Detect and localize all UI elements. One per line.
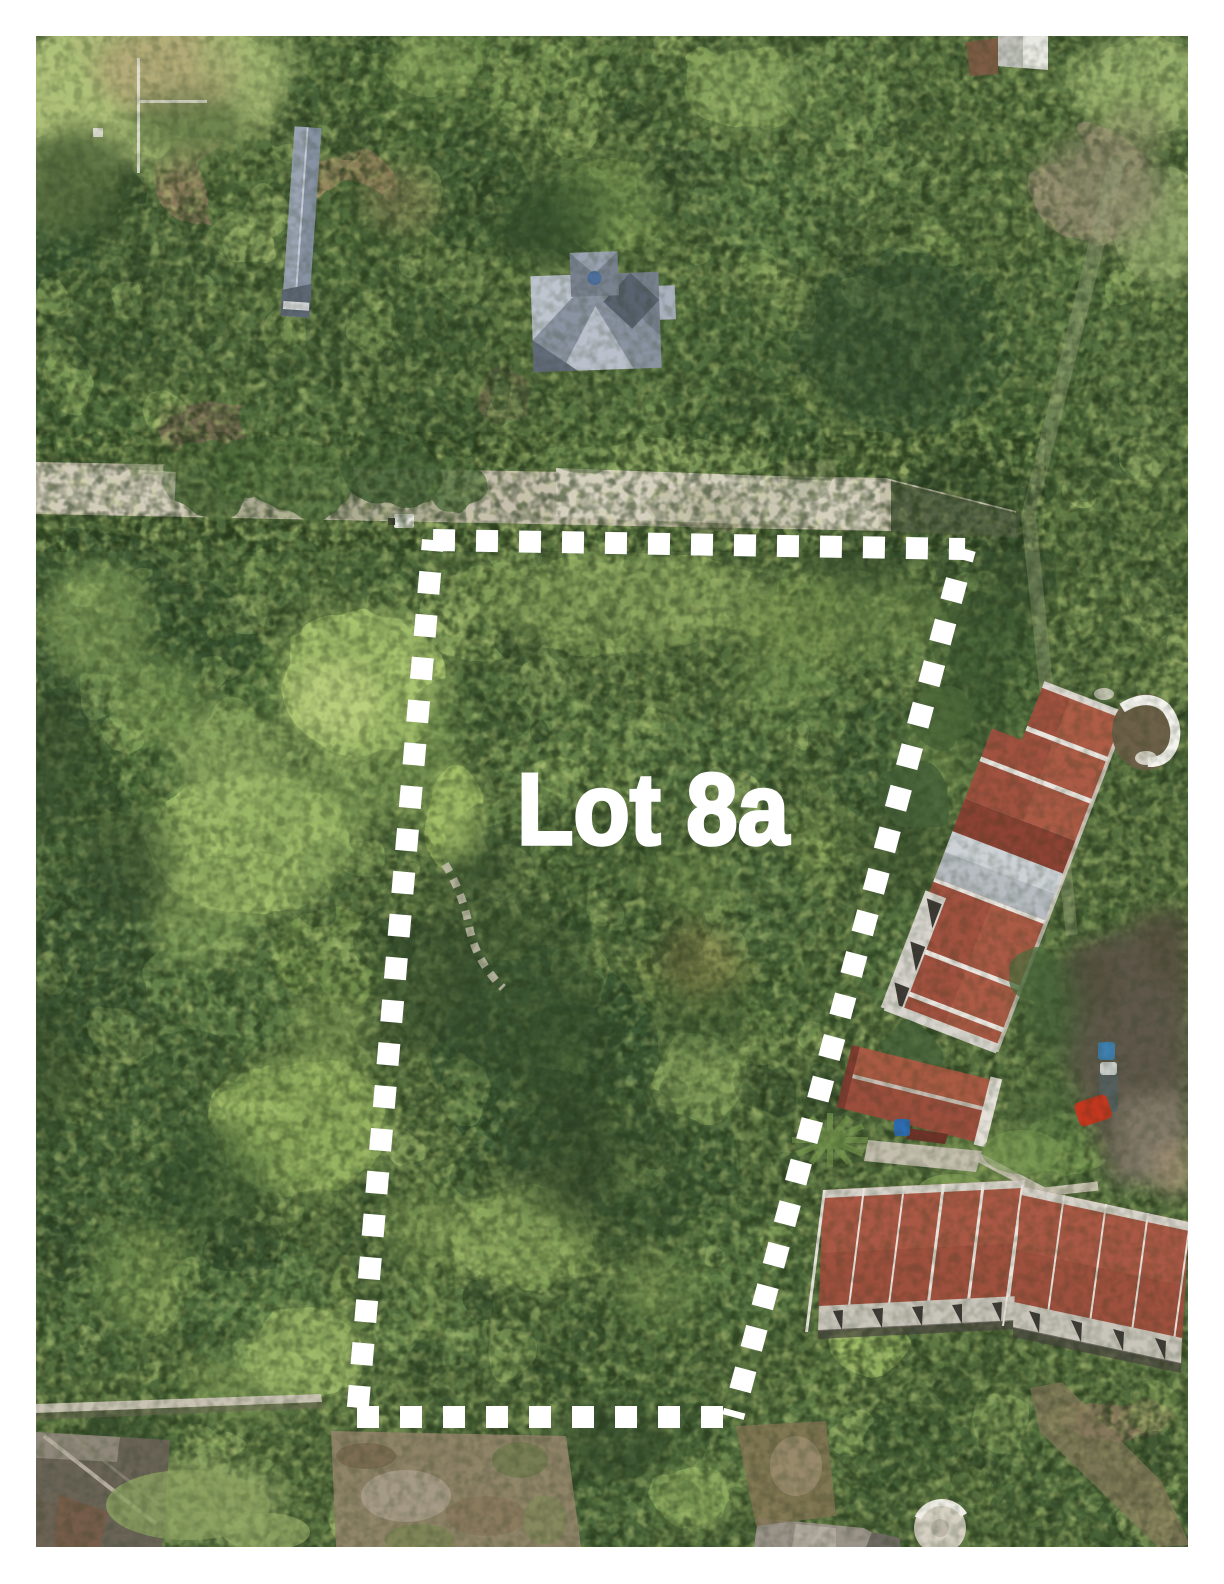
svg-text:Lot 8a: Lot 8a [517,754,790,866]
